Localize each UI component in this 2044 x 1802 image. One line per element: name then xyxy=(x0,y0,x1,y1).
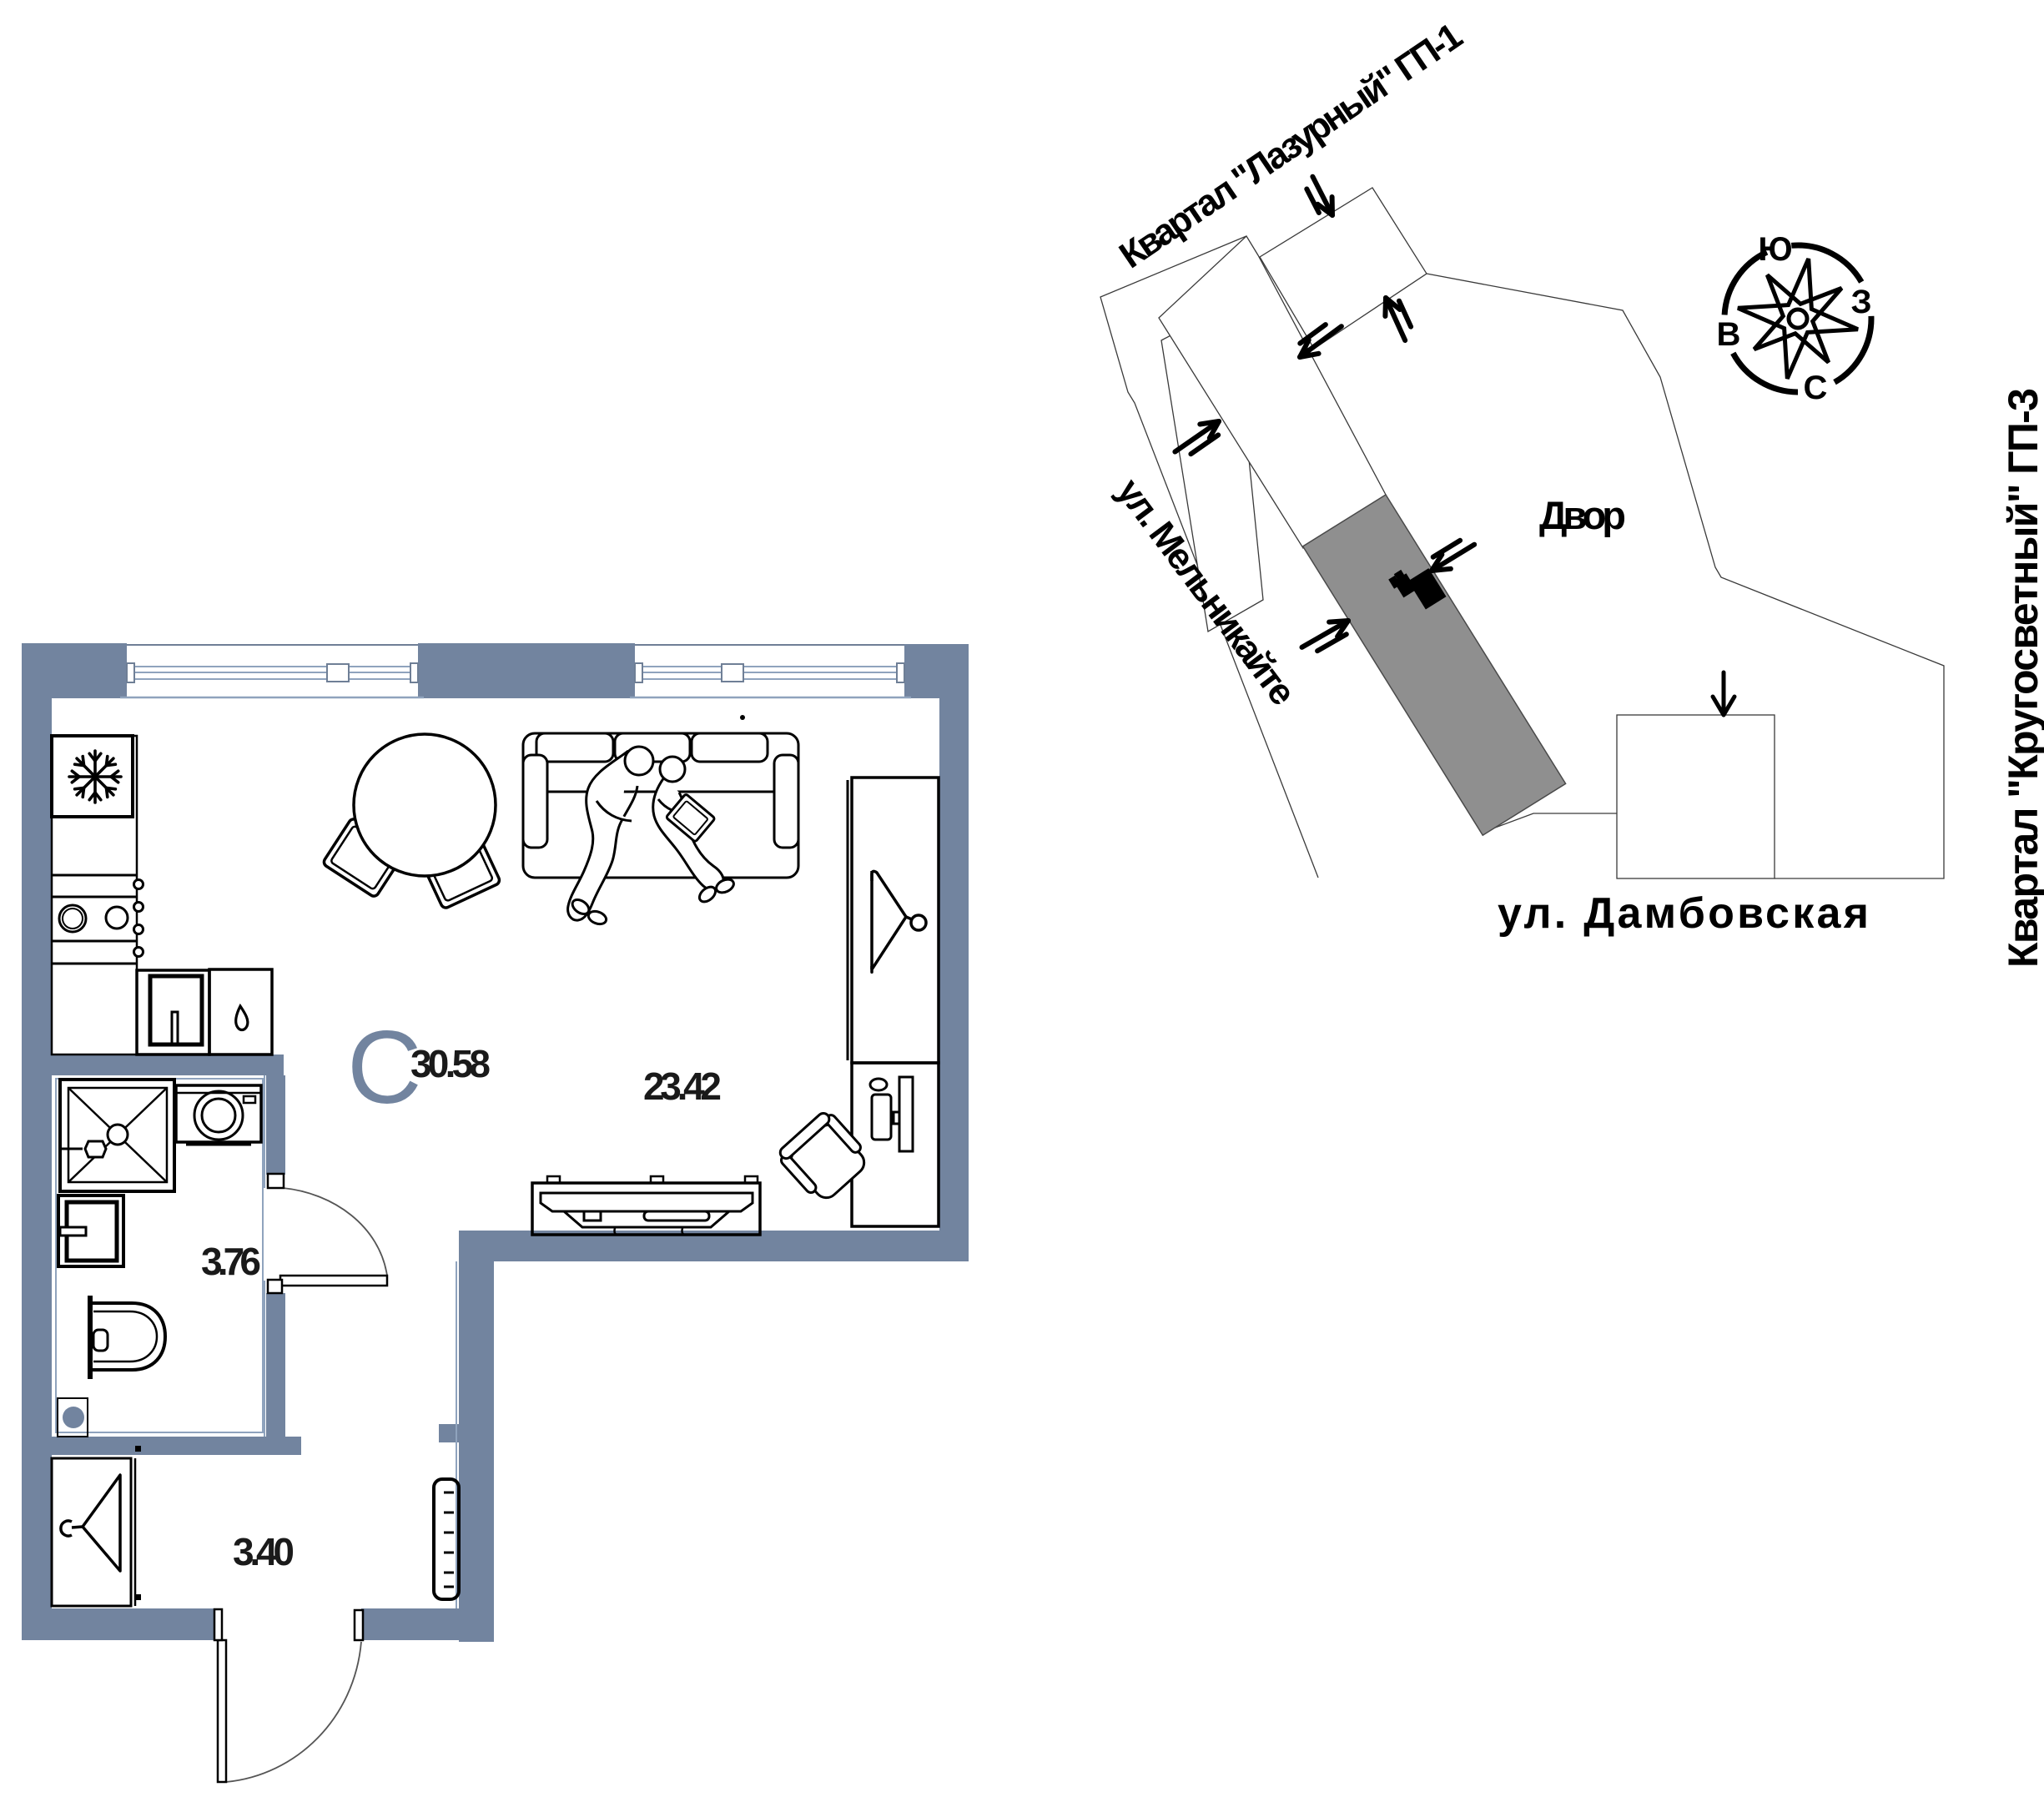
svg-text:30.58: 30.58 xyxy=(410,1042,491,1085)
svg-text:Квартал "Кругосветный" ГП-3: Квартал "Кругосветный" ГП-3 xyxy=(2000,388,2044,968)
svg-text:З: З xyxy=(1850,284,1871,320)
svg-text:23.42: 23.42 xyxy=(643,1065,722,1108)
svg-text:С: С xyxy=(1804,370,1828,406)
svg-text:Двор: Двор xyxy=(1539,493,1626,537)
svg-text:ул. Дамбовская: ул. Дамбовская xyxy=(1498,889,1869,938)
svg-text:3.76: 3.76 xyxy=(201,1240,261,1283)
svg-text:Ю: Ю xyxy=(1758,231,1792,268)
svg-text:В: В xyxy=(1717,316,1741,353)
svg-text:3.40: 3.40 xyxy=(233,1530,295,1573)
